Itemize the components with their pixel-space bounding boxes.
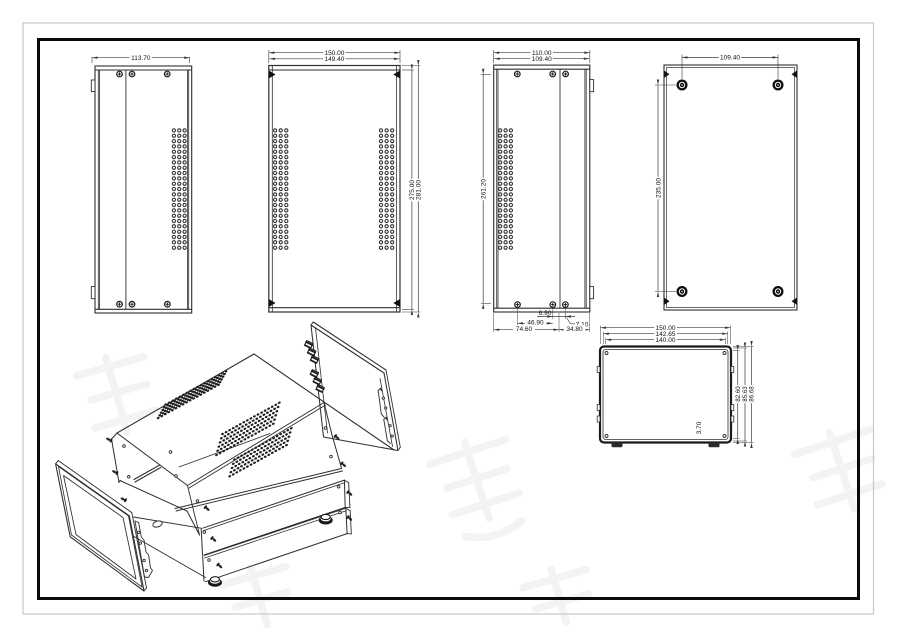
svg-text:74.60: 74.60 (516, 326, 533, 333)
svg-text:109.40: 109.40 (720, 55, 740, 62)
svg-text:6.90: 6.90 (539, 310, 552, 317)
svg-text:3.70: 3.70 (696, 421, 703, 434)
svg-text:149.40: 149.40 (324, 56, 344, 63)
svg-text:140.00: 140.00 (656, 337, 676, 344)
svg-text:235.00: 235.00 (655, 178, 662, 198)
svg-text:82.60: 82.60 (735, 386, 742, 402)
svg-text:34.80: 34.80 (566, 326, 583, 333)
svg-text:261.20: 261.20 (481, 179, 488, 199)
svg-text:113.70: 113.70 (131, 55, 151, 62)
svg-text:281.00: 281.00 (416, 180, 423, 200)
svg-text:109.40: 109.40 (532, 56, 552, 63)
svg-text:86.68: 86.68 (749, 386, 756, 402)
